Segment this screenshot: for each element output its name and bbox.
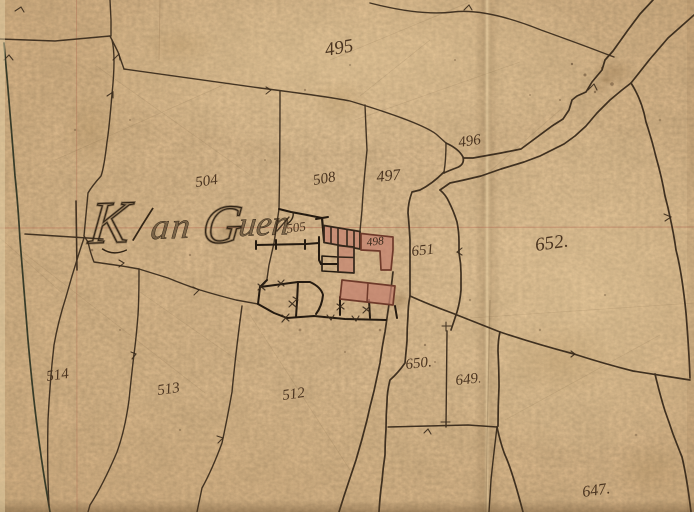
svg-text:498: 498 xyxy=(366,235,385,249)
svg-text:514: 514 xyxy=(45,366,70,385)
svg-text:651: 651 xyxy=(411,242,435,260)
svg-text:513: 513 xyxy=(156,380,181,399)
svg-text:an: an xyxy=(149,206,194,248)
svg-text:512: 512 xyxy=(281,385,306,404)
svg-text:504: 504 xyxy=(194,172,219,191)
svg-text:uen: uen xyxy=(237,203,291,244)
svg-text:649.: 649. xyxy=(455,370,482,389)
svg-text:497: 497 xyxy=(376,166,403,186)
svg-text:496: 496 xyxy=(457,132,482,151)
svg-text:650.: 650. xyxy=(405,354,433,373)
